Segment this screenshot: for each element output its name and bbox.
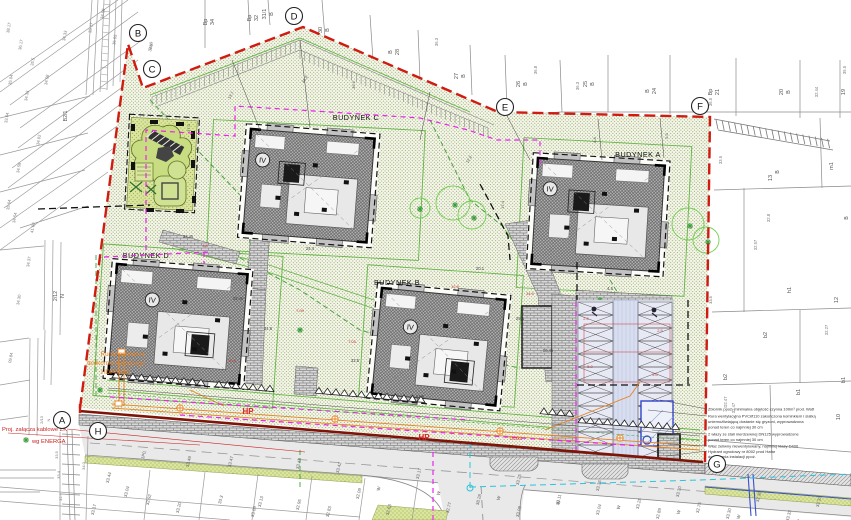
svg-text:7.09: 7.09 — [296, 308, 305, 313]
svg-text:27: 27 — [454, 73, 460, 79]
svg-text:36.8: 36.8 — [533, 65, 538, 74]
svg-text:32.57: 32.57 — [753, 239, 758, 250]
svg-text:10: 10 — [836, 414, 842, 420]
svg-text:BUDYNEK B: BUDYNEK B — [374, 278, 420, 287]
svg-text:b2: b2 — [763, 332, 769, 338]
svg-text:IV: IV — [259, 156, 267, 166]
svg-text:2.5: 2.5 — [657, 328, 663, 333]
svg-text:B2/1: B2/1 — [63, 111, 69, 122]
svg-text:36.3: 36.3 — [575, 81, 580, 90]
svg-text:IV: IV — [148, 295, 156, 305]
svg-text:33.4: 33.4 — [56, 470, 61, 479]
svg-text:5.0: 5.0 — [652, 372, 658, 377]
svg-text:37.0: 37.0 — [186, 123, 191, 132]
svg-text:B: B — [325, 28, 331, 32]
svg-text:2/13: 2/13 — [39, 415, 44, 424]
svg-text:10.45: 10.45 — [543, 348, 554, 353]
svg-text:b1: b1 — [841, 377, 847, 383]
svg-text:H: H — [95, 426, 102, 437]
svg-text:B: B — [388, 50, 394, 54]
svg-text:IV: IV — [406, 322, 414, 332]
svg-text:36.6: 36.6 — [351, 80, 356, 89]
svg-text:F: F — [697, 101, 703, 112]
svg-text:2 włazy ze stali nierdzewnej D: 2 włazy ze stali nierdzewnej DN125 wypro… — [708, 432, 799, 437]
svg-text:E: E — [502, 102, 508, 113]
svg-text:B: B — [269, 12, 275, 16]
svg-text:Bp: Bp — [203, 19, 209, 26]
svg-text:BUDYNEK D: BUDYNEK D — [123, 251, 169, 260]
svg-text:7.05: 7.05 — [348, 339, 357, 344]
svg-text:34.5: 34.5 — [526, 291, 535, 296]
svg-text:HP: HP — [242, 407, 254, 416]
svg-text:19: 19 — [841, 89, 847, 95]
svg-text:10.8: 10.8 — [228, 358, 237, 363]
svg-text:17.4: 17.4 — [500, 200, 505, 209]
svg-text:uniemożliwiającą dostanie się: uniemożliwiającą dostanie się gryzoni, w… — [708, 419, 804, 424]
svg-text:26: 26 — [516, 81, 522, 87]
svg-text:33.5: 33.5 — [718, 155, 723, 164]
svg-text:34.6: 34.6 — [264, 326, 273, 331]
svg-text:36.3: 36.3 — [434, 37, 439, 46]
svg-text:N: N — [46, 418, 51, 421]
svg-text:Oczko: Oczko — [510, 436, 523, 441]
svg-text:20.1: 20.1 — [476, 266, 485, 271]
svg-text:32.27: 32.27 — [824, 324, 829, 335]
svg-text:Rura wentylacyjna PVCØ110 zako: Rura wentylacyjna PVCØ110 zakończona kom… — [708, 414, 817, 419]
svg-text:12.8: 12.8 — [451, 284, 460, 289]
svg-text:20: 20 — [779, 89, 785, 95]
svg-text:32: 32 — [254, 15, 260, 21]
svg-text:Ruraż przyłącza: Ruraż przyłącza — [101, 351, 146, 358]
svg-text:30: 30 — [318, 27, 324, 33]
svg-text:32.8: 32.8 — [766, 213, 771, 222]
svg-text:31/1: 31/1 — [262, 9, 268, 20]
svg-text:61.8: 61.8 — [416, 394, 425, 399]
svg-text:B: B — [786, 90, 792, 94]
svg-text:9.9: 9.9 — [664, 132, 669, 138]
svg-text:B: B — [135, 28, 141, 39]
svg-text:ponad teren co najmniej 30 cm: ponad teren co najmniej 30 cm — [708, 437, 763, 442]
svg-text:13: 13 — [768, 175, 774, 181]
svg-text:21: 21 — [715, 89, 721, 95]
svg-text:2.5: 2.5 — [583, 316, 589, 321]
svg-text:HDPE 110: HDPE 110 — [101, 369, 130, 376]
svg-text:IV: IV — [546, 184, 554, 193]
svg-text:Bp: Bp — [708, 89, 714, 96]
svg-text:b1: b1 — [796, 389, 802, 395]
svg-text:24: 24 — [652, 88, 658, 94]
svg-text:34.0: 34.0 — [81, 461, 86, 470]
svg-text:h1: h1 — [787, 287, 793, 293]
svg-text:8.8: 8.8 — [592, 136, 597, 142]
svg-text:N: N — [60, 294, 66, 298]
svg-text:33.5: 33.5 — [351, 358, 360, 363]
svg-text:29.1: 29.1 — [516, 316, 525, 321]
svg-text:34: 34 — [210, 19, 216, 25]
svg-text:12: 12 — [834, 297, 840, 303]
svg-text:28: 28 — [395, 49, 401, 55]
svg-text:32.44: 32.44 — [814, 86, 819, 97]
svg-text:telekomunikacyjnego: telekomunikacyjnego — [87, 360, 145, 367]
svg-text:33.5: 33.5 — [54, 450, 59, 459]
svg-text:ponad teren co najmniej 30 cm: ponad teren co najmniej 30 cm — [708, 425, 763, 430]
svg-text:33.45: 33.45 — [183, 234, 194, 239]
svg-text:33.5: 33.5 — [708, 295, 713, 304]
svg-text:m1: m1 — [829, 162, 835, 170]
svg-text:33.45: 33.45 — [233, 296, 244, 301]
svg-text:24.4: 24.4 — [306, 246, 315, 251]
svg-text:Bp: Bp — [247, 15, 253, 22]
svg-text:B: B — [523, 82, 529, 86]
svg-text:D: D — [291, 11, 298, 22]
svg-text:BUDYNEK C: BUDYNEK C — [333, 113, 379, 122]
svg-text:b2: b2 — [723, 374, 729, 380]
svg-text:5.0: 5.0 — [587, 364, 593, 369]
svg-text:Zbiornik ppoż. minimalna objęt: Zbiornik ppoż. minimalna objętość czynna… — [708, 407, 815, 412]
svg-text:2/12: 2/12 — [53, 291, 59, 301]
svg-text:A: A — [59, 415, 66, 426]
svg-text:B: B — [645, 89, 651, 93]
svg-text:Właz żeliwny niewentylowany, n: Właz żeliwny niewentylowany, najmniej kl… — [708, 444, 799, 449]
svg-text:4.5: 4.5 — [607, 286, 613, 291]
svg-text:4.8: 4.8 — [202, 243, 208, 248]
svg-text:BUDYNEK A: BUDYNEK A — [615, 150, 661, 159]
svg-text:HP: HP — [418, 433, 430, 442]
svg-text:B: B — [590, 82, 596, 86]
svg-text:G: G — [713, 459, 720, 470]
svg-text:25: 25 — [583, 81, 589, 87]
svg-text:wg ENERGA: wg ENERGA — [31, 439, 66, 445]
svg-text:C: C — [149, 64, 156, 75]
svg-text:32.9: 32.9 — [58, 492, 63, 501]
svg-text:B: B — [461, 74, 467, 78]
svg-text:35.5: 35.5 — [842, 65, 847, 74]
svg-text:Proj. załącza kablowe ZK: Proj. załącza kablowe ZK — [2, 427, 67, 433]
